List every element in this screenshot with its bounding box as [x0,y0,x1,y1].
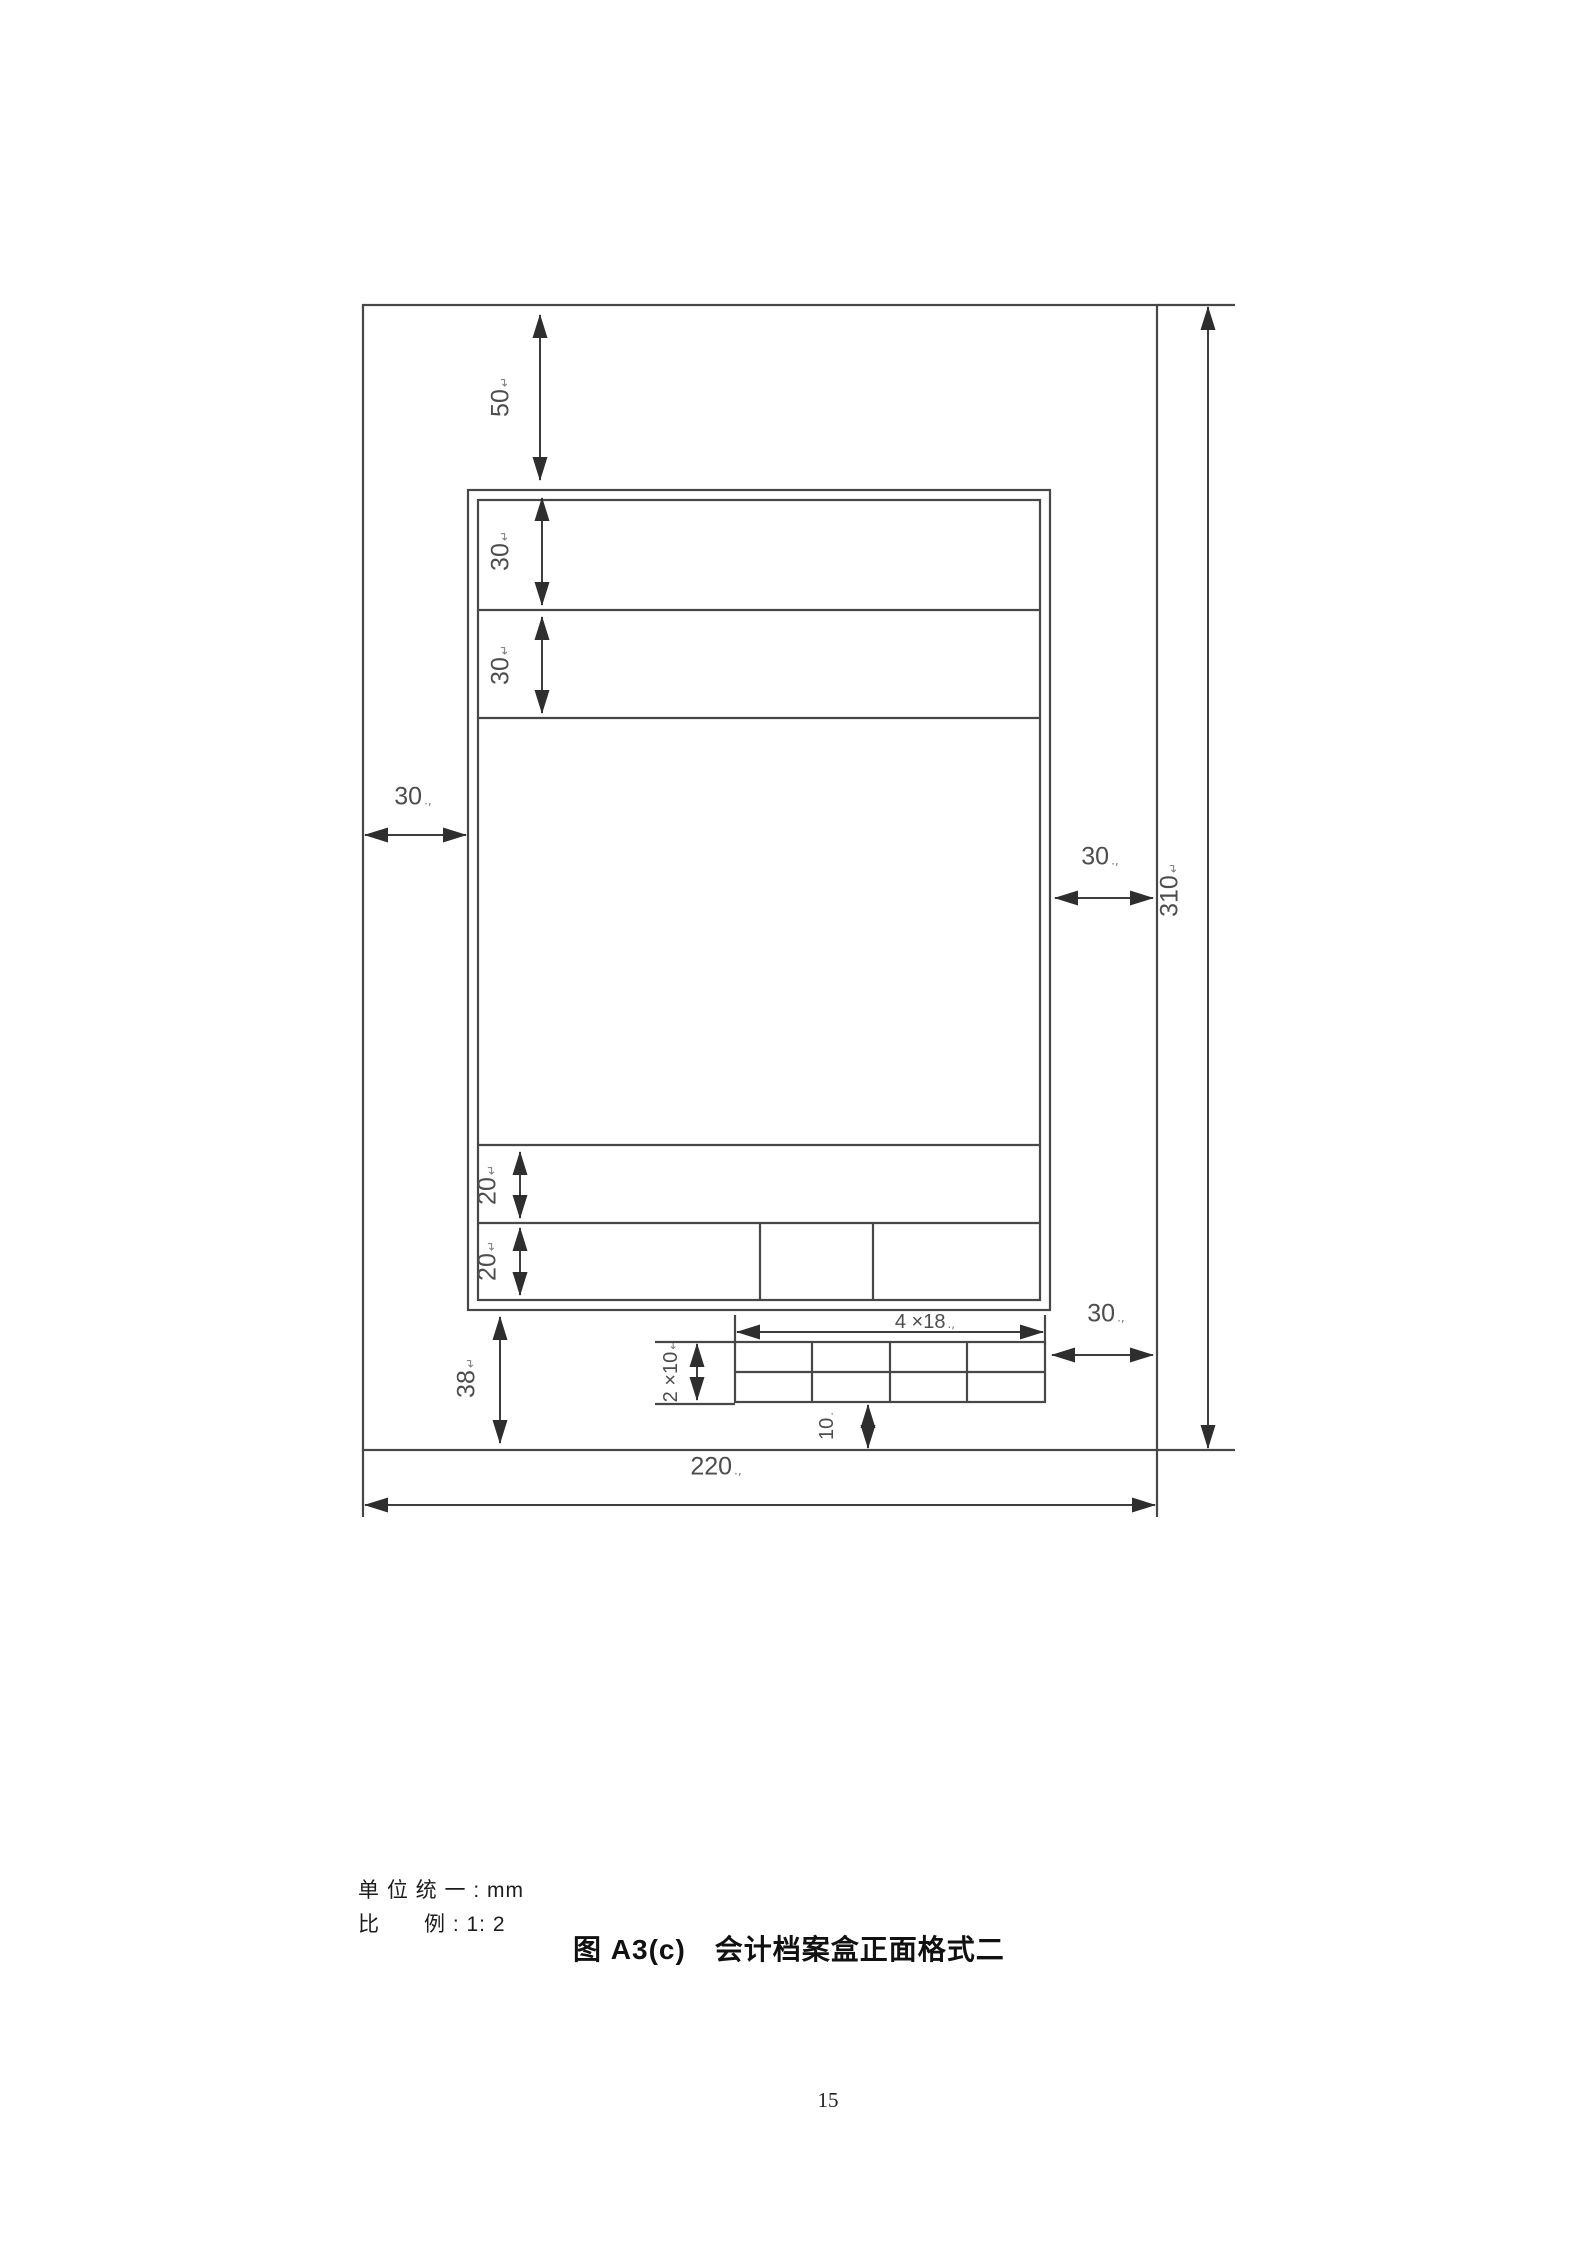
dim-label-310: 310↵ [1158,863,1183,917]
dim-label-30-row1: 30↵ [489,531,514,571]
dim-label-2x10: 2 ×10↵ [661,1340,681,1403]
dim-label-30-right: 30., [1081,845,1118,870]
dim-label-10: 10. [817,1412,837,1440]
document-page: 50↵ 30↵ 30↵ 30., 30., 310↵ 20↵ 20↵ 38↵ 4… [0,0,1587,2245]
inner-panel [468,490,1050,1310]
dim-label-220: 220., [690,1455,741,1480]
technical-drawing [0,0,1587,2245]
dim-label-38: 38↵ [455,1358,480,1398]
dim-label-50: 50↵ [489,377,514,417]
figure-notes: 单 位 统 一 : mm 比 例 : 1: 2 [358,1874,524,1942]
dimension-arrows [365,307,1208,1505]
dim-label-20-row2: 20↵ [476,1241,501,1281]
dim-label-30-bottom: 30., [1087,1302,1124,1327]
unit-note: 单 位 统 一 : mm [358,1874,524,1908]
dim-label-20-row1: 20↵ [476,1165,501,1205]
label-grid [655,1315,1045,1404]
page-number: 15 [818,2088,839,2113]
dim-label-4x18: 4 ×18., [895,1312,955,1332]
dim-label-30-left: 30., [394,785,431,810]
figure-caption: 图 A3(c) 会计档案盒正面格式二 [573,1928,1005,1968]
dim-label-30-row2: 30↵ [489,645,514,685]
scale-note: 比 例 : 1: 2 [358,1908,524,1942]
outer-frame [363,305,1235,1517]
